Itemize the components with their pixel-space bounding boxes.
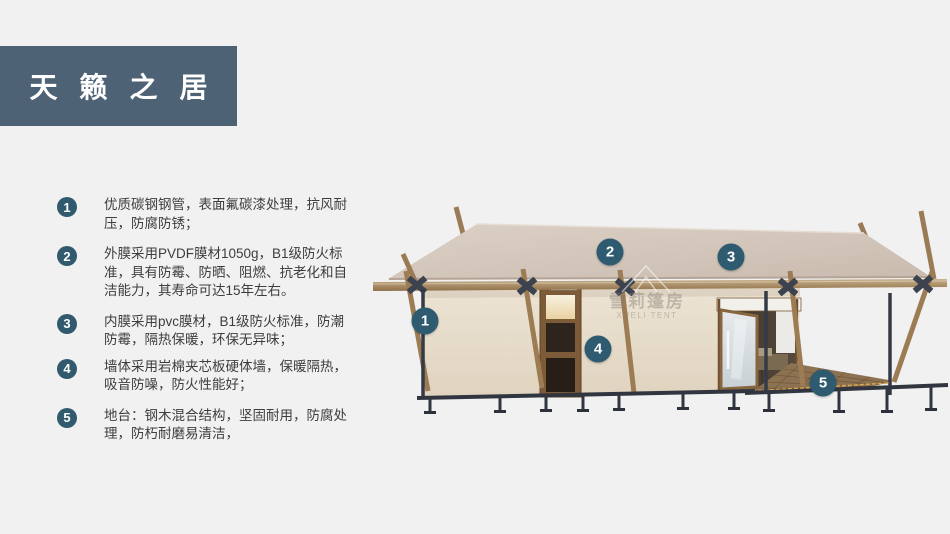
- figure-badge: 1: [412, 308, 439, 335]
- entry-door: [540, 285, 581, 397]
- open-glass-door: [721, 310, 757, 389]
- figure-badge: 4: [585, 336, 612, 363]
- figure-badge: 3: [718, 244, 745, 271]
- interior-door: [776, 309, 795, 353]
- watermark-text-en: XUELI TENT: [616, 311, 677, 320]
- door-glass-upper: [546, 323, 575, 352]
- door-glass-lower: [546, 358, 575, 392]
- tent-figure: 雪莉篷房 XUELI TENT: [0, 0, 950, 534]
- figure-badge: 5: [810, 370, 837, 397]
- transom-panel: [717, 298, 801, 311]
- door-window: [546, 295, 575, 319]
- figure-badge: 2: [597, 239, 624, 266]
- slide-page: { "title": "天籁之居", "features": [ {"num":…: [0, 0, 950, 534]
- watermark-text-cn: 雪莉篷房: [609, 291, 685, 311]
